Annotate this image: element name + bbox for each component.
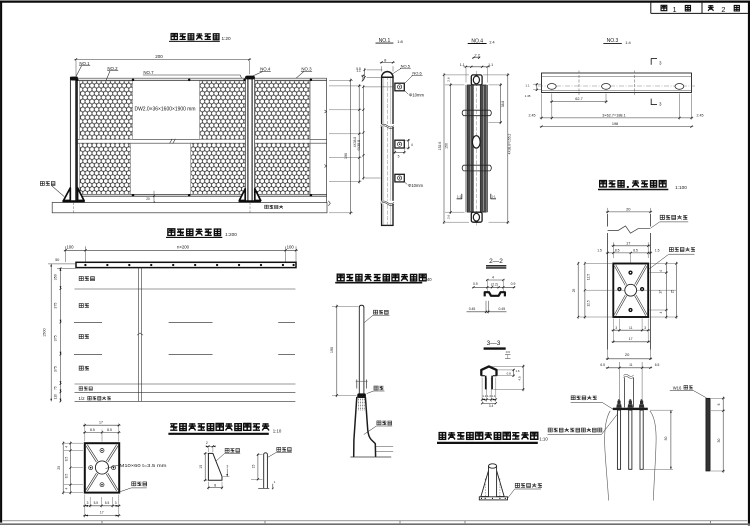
svg-text:3: 3 xyxy=(644,326,646,330)
svg-text:4.5: 4.5 xyxy=(517,376,521,381)
svg-text:0.45: 0.45 xyxy=(498,307,505,311)
svg-text:50: 50 xyxy=(55,258,59,262)
svg-text:198: 198 xyxy=(612,122,618,126)
svg-text:1.45: 1.45 xyxy=(525,94,531,98)
svg-text:3: 3 xyxy=(115,501,117,505)
svg-text:Φ10mm: Φ10mm xyxy=(409,92,424,97)
svg-text:1: 1 xyxy=(673,5,677,14)
svg-text:15: 15 xyxy=(252,465,256,469)
svg-text:1:100: 1:100 xyxy=(675,185,687,190)
svg-text:0.45: 0.45 xyxy=(469,307,476,311)
svg-text:(2.2): (2.2) xyxy=(491,282,498,286)
svg-text:1.1: 1.1 xyxy=(488,63,493,67)
svg-text:4: 4 xyxy=(64,446,68,448)
svg-text:1.1: 1.1 xyxy=(491,394,495,398)
svg-text:1:200: 1:200 xyxy=(225,232,237,237)
svg-text:8.5: 8.5 xyxy=(90,428,95,432)
svg-text:350: 350 xyxy=(53,274,57,280)
svg-text:NO.3: NO.3 xyxy=(301,67,312,72)
svg-text:12.5: 12.5 xyxy=(586,300,590,306)
svg-text:375: 375 xyxy=(53,303,57,309)
svg-text:11: 11 xyxy=(629,326,633,330)
svg-text:8.5: 8.5 xyxy=(615,249,620,253)
svg-text:0.9: 0.9 xyxy=(473,282,478,286)
svg-text:NO.1: NO.1 xyxy=(79,61,90,66)
svg-text:1500: 1500 xyxy=(43,328,47,336)
svg-text:1:40: 1:40 xyxy=(423,277,432,282)
svg-text:25: 25 xyxy=(57,466,61,470)
svg-text:62.7: 62.7 xyxy=(575,97,582,101)
svg-text:5.5: 5.5 xyxy=(94,501,99,505)
svg-text:4: 4 xyxy=(659,311,663,313)
svg-text:2: 2 xyxy=(206,441,208,445)
svg-text:20: 20 xyxy=(146,197,150,201)
svg-text:1:10: 1:10 xyxy=(273,428,282,433)
svg-text:3: 3 xyxy=(87,501,89,505)
svg-text:3.4: 3.4 xyxy=(489,404,494,408)
svg-text:8.5: 8.5 xyxy=(64,474,68,479)
svg-text:1:4: 1:4 xyxy=(625,40,631,45)
svg-text:1/2: 1/2 xyxy=(78,396,85,401)
svg-text:DW2.0×36×1600×1900 mm: DW2.0×36×1600×1900 mm xyxy=(135,106,196,112)
svg-text:0.8: 0.8 xyxy=(507,371,511,375)
svg-text:NO.5: NO.5 xyxy=(401,64,411,69)
svg-text:152.6: 152.6 xyxy=(438,142,442,151)
svg-text:8.5: 8.5 xyxy=(633,249,638,253)
svg-text:200: 200 xyxy=(155,54,163,59)
svg-text:30: 30 xyxy=(664,437,668,441)
svg-text:4X38.8=155.2: 4X38.8=155.2 xyxy=(507,134,511,155)
svg-text:17: 17 xyxy=(99,421,103,425)
svg-text:38.8: 38.8 xyxy=(501,101,505,108)
svg-text:M10×60 t=3.5 mm: M10×60 t=3.5 mm xyxy=(120,463,168,468)
svg-text:75: 75 xyxy=(53,386,57,390)
svg-text:15: 15 xyxy=(199,465,203,469)
svg-text:17: 17 xyxy=(100,510,104,514)
svg-text:20: 20 xyxy=(625,352,630,357)
svg-text:1.6: 1.6 xyxy=(515,369,519,373)
svg-text:1:8: 1:8 xyxy=(397,39,403,44)
svg-text:1.1: 1.1 xyxy=(525,83,530,87)
svg-text:8.5: 8.5 xyxy=(107,428,112,432)
svg-text:Φ10mm: Φ10mm xyxy=(408,183,423,188)
svg-text:NO.2: NO.2 xyxy=(107,66,118,71)
svg-text:110: 110 xyxy=(53,394,57,399)
svg-text:2—2: 2—2 xyxy=(489,258,503,265)
svg-text:3×62.7=188.1: 3×62.7=188.1 xyxy=(602,113,625,117)
svg-text:4: 4 xyxy=(492,275,494,279)
svg-text:1:4: 1:4 xyxy=(489,39,495,44)
svg-text:1:20: 1:20 xyxy=(221,36,231,41)
svg-text:6.5: 6.5 xyxy=(600,363,605,367)
svg-text:8: 8 xyxy=(214,483,216,487)
svg-text:190: 190 xyxy=(344,153,348,159)
svg-text:1-1: 1-1 xyxy=(491,194,496,198)
svg-text:12.5: 12.5 xyxy=(586,274,590,280)
svg-text:100: 100 xyxy=(287,244,295,249)
svg-text:375: 375 xyxy=(53,335,57,341)
svg-text:1.5: 1.5 xyxy=(597,249,602,253)
svg-text:W16: W16 xyxy=(673,385,682,390)
svg-text:30: 30 xyxy=(717,439,721,443)
svg-text:1:10: 1:10 xyxy=(539,436,548,441)
svg-text:17: 17 xyxy=(629,337,633,341)
svg-text:3: 3 xyxy=(615,326,617,330)
svg-text:20: 20 xyxy=(626,206,631,211)
svg-text:2.6: 2.6 xyxy=(447,77,451,82)
svg-text:6.5: 6.5 xyxy=(655,363,660,367)
svg-text:17: 17 xyxy=(659,290,663,294)
svg-text:2.2: 2.2 xyxy=(475,53,480,57)
svg-text:17: 17 xyxy=(626,241,630,245)
svg-text:3: 3 xyxy=(227,464,229,468)
svg-text:3—3: 3—3 xyxy=(487,340,501,347)
svg-text:4: 4 xyxy=(411,143,413,147)
svg-text:4: 4 xyxy=(64,487,68,489)
svg-text:4: 4 xyxy=(659,270,663,272)
svg-text:0.6: 0.6 xyxy=(506,350,511,354)
svg-text:5: 5 xyxy=(398,154,400,158)
svg-text:100: 100 xyxy=(66,244,74,249)
svg-text:4X38.8: 4X38.8 xyxy=(357,140,361,151)
svg-text:8.5: 8.5 xyxy=(64,457,68,462)
svg-text:2.45: 2.45 xyxy=(529,113,536,117)
svg-text:2.6: 2.6 xyxy=(447,214,451,219)
svg-text:NO.6: NO.6 xyxy=(412,71,422,76)
svg-text:375: 375 xyxy=(53,366,57,372)
svg-text:0.9: 0.9 xyxy=(511,282,516,286)
svg-text:2.45: 2.45 xyxy=(697,113,704,117)
svg-text:150: 150 xyxy=(445,143,449,149)
svg-text:25: 25 xyxy=(572,289,576,293)
svg-text:190: 190 xyxy=(330,347,334,353)
svg-text:1.1: 1.1 xyxy=(460,63,465,67)
svg-text:5.5: 5.5 xyxy=(105,501,110,505)
svg-text:NO.4: NO.4 xyxy=(260,67,271,72)
svg-text:2: 2 xyxy=(721,5,725,14)
svg-text:NO.7: NO.7 xyxy=(143,70,154,75)
svg-text:1-1: 1-1 xyxy=(457,194,462,198)
svg-text:n×200: n×200 xyxy=(177,244,190,249)
svg-text:1.5: 1.5 xyxy=(655,249,660,253)
svg-text:11: 11 xyxy=(629,363,633,367)
svg-text:6: 6 xyxy=(717,403,721,405)
svg-text:5.5: 5.5 xyxy=(356,67,361,71)
